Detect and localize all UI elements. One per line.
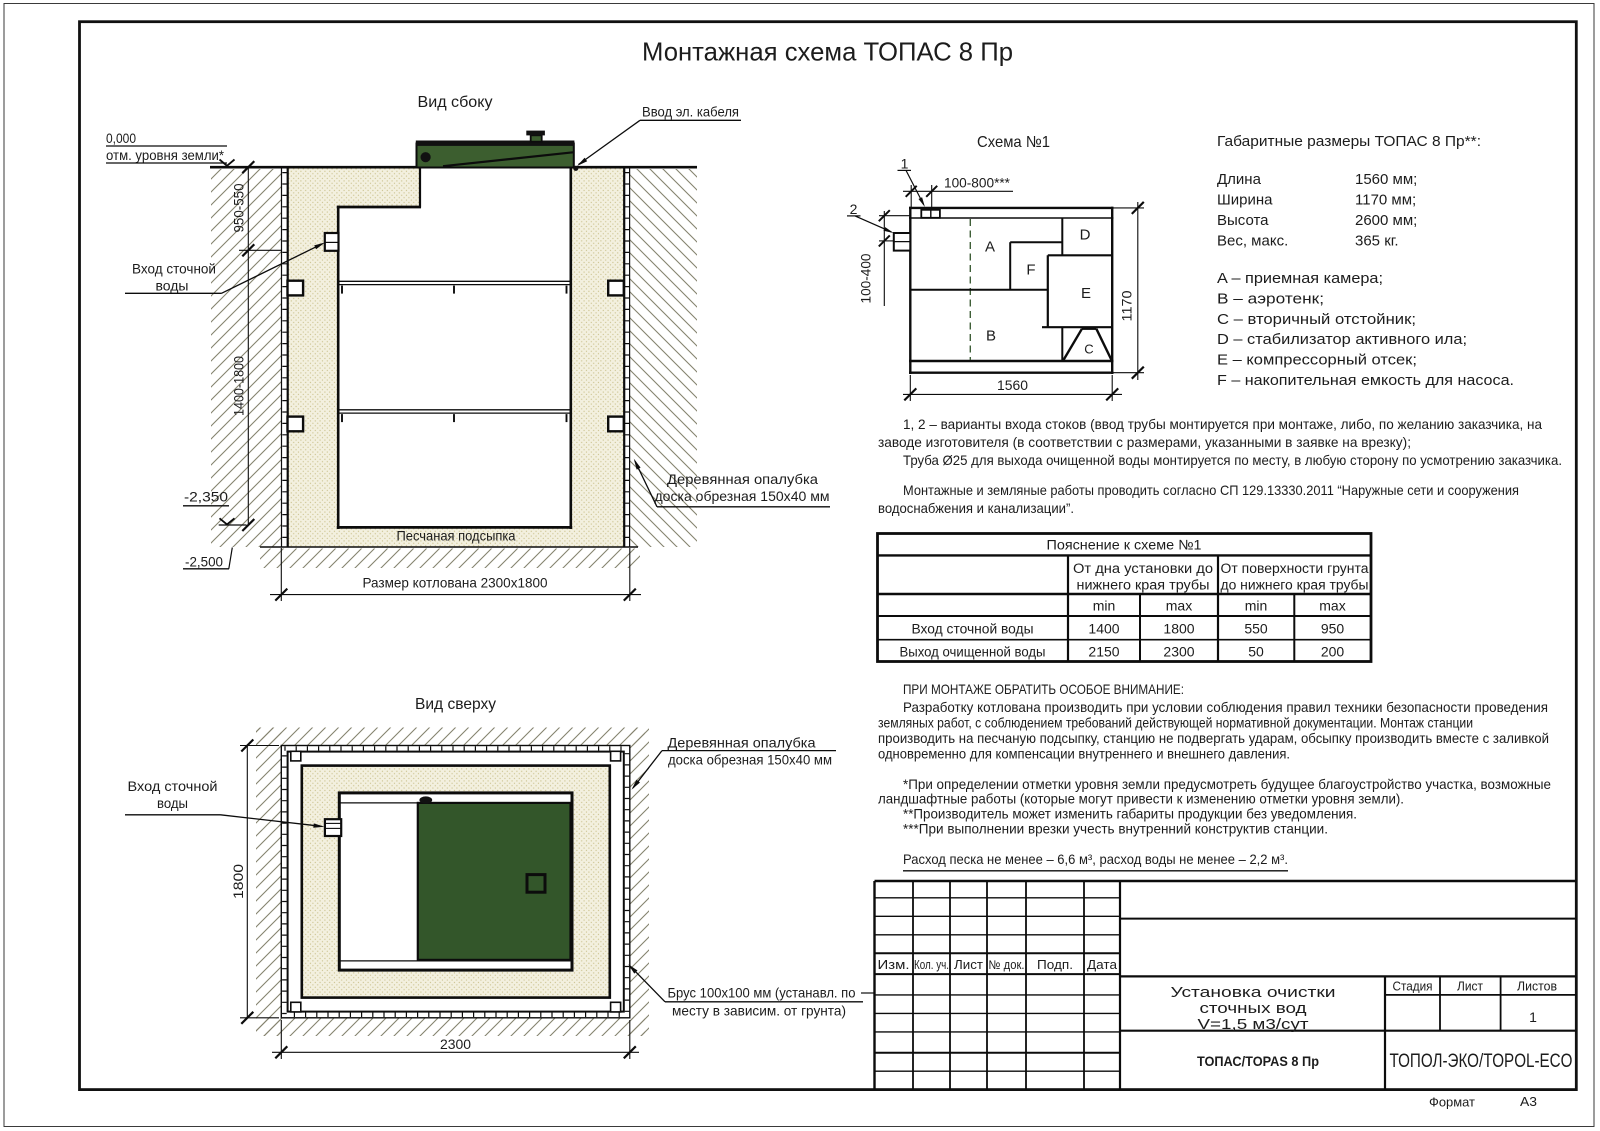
svg-text:ТОПАС/TOPAS 8 Пр: ТОПАС/TOPAS 8 Пр	[1197, 1053, 1319, 1069]
svg-text:Схема №1: Схема №1	[977, 134, 1050, 151]
svg-text:-2,500: -2,500	[185, 554, 223, 570]
svg-text:одновременно для компенсации в: одновременно для компенсации внутреннего…	[878, 746, 1290, 762]
svg-text:max: max	[1319, 598, 1345, 614]
svg-text:Вход сточной: Вход сточной	[132, 261, 216, 277]
svg-text:Песчаная подсыпка: Песчаная подсыпка	[397, 528, 516, 544]
svg-text:F – накопительная емкость для: F – накопительная емкость для насоса.	[1217, 372, 1514, 389]
svg-text:1: 1	[1529, 1009, 1537, 1025]
svg-text:Ширина: Ширина	[1217, 192, 1273, 209]
svg-text:**Производитель может изменить: **Производитель может изменить габариты …	[903, 806, 1357, 822]
svg-text:A – приемная камера;: A – приемная камера;	[1217, 270, 1383, 287]
svg-text:2: 2	[850, 201, 858, 217]
svg-text:950-550: 950-550	[231, 183, 247, 232]
svg-text:E: E	[1081, 285, 1091, 302]
svg-text:D: D	[1080, 227, 1091, 244]
svg-text:D – стабилизатор активного ила: D – стабилизатор активного ила;	[1217, 331, 1467, 348]
svg-text:0,000: 0,000	[106, 130, 136, 146]
svg-text:1560 мм;: 1560 мм;	[1355, 171, 1417, 188]
svg-text:От поверхности грунта: От поверхности грунта	[1221, 561, 1370, 576]
svg-text:1400-1800: 1400-1800	[231, 356, 247, 416]
svg-text:воды: воды	[156, 278, 189, 294]
svg-text:950: 950	[1321, 621, 1345, 637]
svg-text:Вид сбоку: Вид сбоку	[418, 94, 493, 111]
svg-text:сточных вод: сточных вод	[1200, 1000, 1307, 1017]
svg-text:Размер котлована 2300x1800: Размер котлована 2300x1800	[363, 575, 548, 591]
svg-text:max: max	[1166, 598, 1192, 614]
svg-text:производить на песчаную подсып: производить на песчаную подсыпку, станци…	[878, 730, 1549, 746]
svg-text:50: 50	[1248, 644, 1264, 660]
svg-text:2300: 2300	[1163, 644, 1194, 660]
svg-text:№ док.: № док.	[989, 958, 1025, 972]
svg-text:Листов: Листов	[1517, 979, 1557, 994]
svg-text:Установка очистки: Установка очистки	[1171, 984, 1336, 1001]
svg-text:C: C	[1084, 342, 1093, 357]
svg-text:V=1,5 м3/сут: V=1,5 м3/сут	[1198, 1016, 1309, 1033]
svg-text:Разработку котлована производи: Разработку котлована производить при усл…	[903, 699, 1548, 715]
svg-text:воды: воды	[157, 795, 188, 811]
svg-text:Монтажные и земляные работы пр: Монтажные и земляные работы проводить со…	[903, 482, 1519, 498]
svg-text:нижнего края трубы: нижнего края трубы	[1077, 578, 1210, 593]
svg-text:100-800***: 100-800***	[944, 175, 1011, 191]
svg-text:1800: 1800	[230, 864, 246, 899]
svg-text:B – аэротенк;: B – аэротенк;	[1217, 290, 1324, 307]
svg-text:B: B	[986, 328, 996, 345]
svg-text:1560: 1560	[997, 377, 1028, 393]
svg-text:E – компрессорный отсек;: E – компрессорный отсек;	[1217, 352, 1417, 369]
svg-text:Дата: Дата	[1087, 958, 1117, 972]
svg-text:-2,350: -2,350	[184, 489, 228, 505]
svg-text:Кол. уч.: Кол. уч.	[914, 958, 949, 972]
svg-text:отм. уровня земли*: отм. уровня земли*	[106, 147, 225, 163]
svg-text:Изм.: Изм.	[878, 958, 910, 972]
svg-text:Длина: Длина	[1217, 171, 1262, 188]
svg-text:Расход песка не менее – 6,6 м³: Расход песка не менее – 6,6 м³, расход в…	[903, 851, 1288, 867]
svg-text:Труба Ø25 для выхода очищенной: Труба Ø25 для выхода очищенной воды монт…	[903, 452, 1562, 468]
svg-text:Лист: Лист	[954, 958, 983, 972]
svg-text:Вход сточной воды: Вход сточной воды	[912, 621, 1034, 637]
svg-text:месту в зависим. от грунта): месту в зависим. от грунта)	[672, 1003, 846, 1019]
svg-text:2300: 2300	[440, 1036, 471, 1052]
svg-text:Габаритные размеры ТОПАС 8 Пр*: Габаритные размеры ТОПАС 8 Пр**:	[1217, 133, 1481, 150]
svg-text:2600 мм;: 2600 мм;	[1355, 212, 1417, 229]
svg-text:2150: 2150	[1088, 644, 1119, 660]
svg-text:доска обрезная 150x40 мм: доска обрезная 150x40 мм	[655, 488, 830, 504]
svg-text:земляных работ, с соблюдением: земляных работ, с соблюдением требований…	[878, 715, 1473, 731]
svg-text:Лист: Лист	[1457, 979, 1483, 994]
svg-text:водоснабжения и канализации”.: водоснабжения и канализации”.	[878, 500, 1074, 516]
svg-text:1170 мм;: 1170 мм;	[1355, 192, 1416, 209]
svg-text:Монтажная схема ТОПАС 8 Пр: Монтажная схема ТОПАС 8 Пр	[642, 37, 1013, 67]
svg-text:C – вторичный отстойник;: C – вторичный отстойник;	[1217, 311, 1416, 328]
svg-text:Формат: Формат	[1429, 1095, 1475, 1110]
svg-text:Стадия: Стадия	[1393, 979, 1433, 994]
svg-text:***При выполнении врезки учест: ***При выполнении врезки учесть внутренн…	[903, 821, 1328, 837]
svg-text:100-400: 100-400	[858, 253, 874, 303]
svg-text:Вид сверху: Вид сверху	[415, 696, 496, 713]
svg-text:1, 2 – варианты входа стоков: 1, 2 – варианты входа стоков (ввод трубы…	[903, 416, 1542, 432]
svg-text:min: min	[1093, 598, 1116, 614]
svg-text:550: 550	[1244, 621, 1268, 637]
svg-text:От дна установки до: От дна установки до	[1073, 561, 1213, 576]
svg-text:1400: 1400	[1088, 621, 1119, 637]
svg-text:Пояснение к схеме №1: Пояснение к схеме №1	[1047, 537, 1202, 553]
svg-text:1170: 1170	[1119, 290, 1135, 321]
svg-text:365 кг.: 365 кг.	[1355, 233, 1399, 250]
svg-text:200: 200	[1321, 644, 1345, 660]
svg-text:заводе изготовителя (в соответ: заводе изготовителя (в соответствии с ра…	[878, 434, 1411, 450]
svg-text:Вес, макс.: Вес, макс.	[1217, 233, 1288, 250]
svg-text:А3: А3	[1520, 1094, 1537, 1109]
svg-text:Подп.: Подп.	[1037, 958, 1073, 972]
svg-text:A: A	[985, 239, 995, 256]
svg-text:Деревянная опалубка: Деревянная опалубка	[667, 471, 818, 487]
svg-text:1800: 1800	[1163, 621, 1194, 637]
svg-text:ландшафтные работы (которые мо: ландшафтные работы (которые могут привес…	[878, 791, 1404, 807]
svg-text:Брус 100x100 мм (устанавл. по: Брус 100x100 мм (устанавл. по	[668, 985, 856, 1001]
svg-text:1: 1	[901, 156, 909, 172]
svg-text:F: F	[1026, 262, 1035, 279]
svg-text:min: min	[1245, 598, 1268, 614]
svg-text:доска обрезная 150x40 мм: доска обрезная 150x40 мм	[668, 752, 832, 768]
svg-text:Ввод эл. кабеля: Ввод эл. кабеля	[642, 104, 739, 120]
svg-text:Выход очищенной воды: Выход очищенной воды	[900, 644, 1046, 660]
svg-text:ПРИ МОНТАЖЕ ОБРАТИТЬ ОСОБОЕ ВН: ПРИ МОНТАЖЕ ОБРАТИТЬ ОСОБОЕ ВНИМАНИЕ:	[903, 681, 1184, 697]
svg-text:ТОПОЛ-ЭКО/TOPOL-ECO: ТОПОЛ-ЭКО/TOPOL-ECO	[1390, 1051, 1573, 1072]
svg-text:Деревянная опалубка: Деревянная опалубка	[668, 735, 816, 751]
svg-text:до нижнего края трубы: до нижнего края трубы	[1221, 578, 1369, 593]
svg-text:Вход сточной: Вход сточной	[128, 778, 218, 794]
svg-text:Высота: Высота	[1217, 212, 1269, 229]
